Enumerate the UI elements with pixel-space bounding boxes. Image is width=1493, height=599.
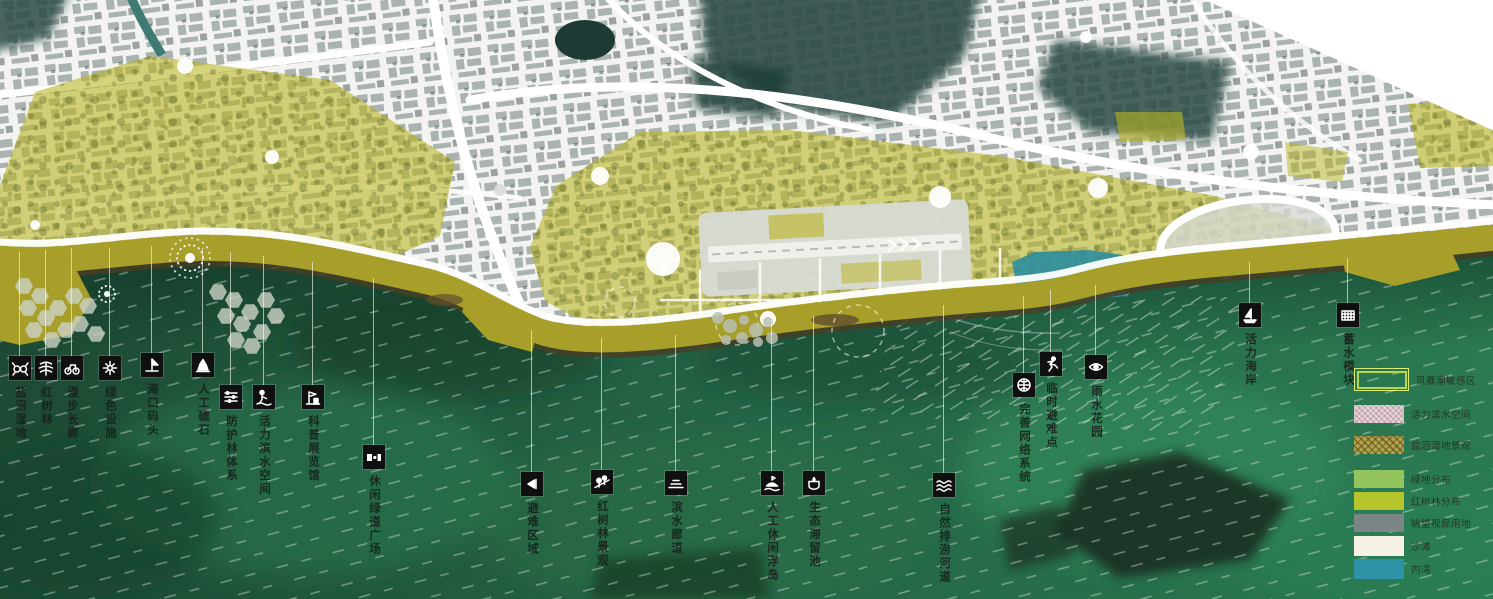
leader-line bbox=[45, 250, 46, 356]
legend-label: 风暴潮敏感区 bbox=[1416, 373, 1476, 387]
mangrove-view-icon bbox=[591, 470, 613, 494]
legend-label: 绿地分布 bbox=[1411, 472, 1451, 486]
legend-row: 绿地分布 bbox=[1354, 470, 1493, 488]
salt-marsh-icon bbox=[9, 356, 31, 380]
exhibition-hall-icon bbox=[302, 385, 324, 409]
callout-label: 人工礁石 bbox=[195, 383, 211, 437]
leader-line bbox=[1347, 258, 1348, 303]
leader-line bbox=[263, 256, 264, 385]
legend-row: 眺望视廊用地 bbox=[1354, 514, 1493, 532]
leader-line bbox=[813, 316, 814, 471]
callout-label: 海口码头 bbox=[144, 383, 160, 437]
refuge-area-icon bbox=[521, 472, 543, 496]
waterfront-space-icon bbox=[253, 385, 275, 409]
mangrove-tree-icon bbox=[35, 356, 57, 380]
active-coast-icon bbox=[1239, 303, 1261, 327]
callout-label: 滨水廊道 bbox=[668, 501, 684, 555]
leader-line bbox=[19, 252, 20, 356]
callout-label: 防护林体系 bbox=[223, 415, 239, 483]
leader-line bbox=[202, 248, 203, 353]
leader-line bbox=[943, 305, 944, 473]
callout-label: 绿色设施 bbox=[102, 386, 118, 440]
water-storage-icon bbox=[1337, 303, 1359, 327]
legend-swatch bbox=[1354, 368, 1409, 391]
leader-line bbox=[109, 248, 110, 356]
leader-line bbox=[771, 320, 772, 471]
retention-pond-icon bbox=[803, 471, 825, 495]
callout-label: 雨水花园 bbox=[1088, 385, 1104, 439]
masterplan-canvas: 盐沼湿地 红树林 漫步长廊 绿色设施 海口码头 人工礁石 bbox=[0, 0, 1493, 599]
drainage-channel-icon bbox=[933, 473, 955, 497]
leader-line bbox=[1023, 296, 1024, 373]
leader-line bbox=[675, 335, 676, 471]
legend-row: 活力滨水空间 bbox=[1354, 405, 1493, 423]
legend-swatch bbox=[1354, 536, 1404, 556]
wharf-sail-icon bbox=[141, 353, 163, 377]
legend-row: 沙滩 bbox=[1354, 536, 1493, 556]
bicycle-icon bbox=[61, 356, 83, 380]
callout-label: 漫步长廊 bbox=[64, 386, 80, 440]
callout-label: 活力海岸 bbox=[1242, 333, 1258, 387]
shelter-forest-icon bbox=[220, 385, 242, 409]
leader-line bbox=[71, 248, 72, 356]
map-legend: 风暴潮敏感区 活力滨水空间 盐沼湿地景观 绿地分布 红树林分布 眺望视廊用地 沙… bbox=[1354, 368, 1493, 579]
legend-swatch bbox=[1354, 559, 1404, 579]
leader-line bbox=[601, 338, 602, 470]
legend-swatch bbox=[1354, 470, 1404, 488]
callout-label: 红树林 bbox=[38, 386, 54, 427]
leader-line bbox=[230, 252, 231, 385]
legend-row: 内湾 bbox=[1354, 559, 1493, 579]
leader-line bbox=[1050, 290, 1051, 352]
legend-label: 红树林分布 bbox=[1411, 494, 1461, 508]
legend-row: 风暴潮敏感区 bbox=[1354, 368, 1493, 391]
evacuation-point-icon bbox=[1040, 352, 1062, 376]
legend-label: 内湾 bbox=[1411, 562, 1431, 576]
leader-line bbox=[373, 278, 374, 445]
legend-row: 红树林分布 bbox=[1354, 492, 1493, 510]
legend-swatch bbox=[1354, 405, 1404, 423]
legend-label: 活力滨水空间 bbox=[1411, 407, 1471, 421]
callout-label: 盐沼湿地 bbox=[12, 386, 28, 440]
callout-label: 自然排涝河道 bbox=[936, 503, 952, 584]
legend-label: 盐沼湿地景观 bbox=[1411, 438, 1471, 452]
callout-label: 生态滞留池 bbox=[806, 501, 822, 569]
legend-swatch bbox=[1354, 492, 1404, 510]
masterplan-map bbox=[0, 0, 1493, 599]
waterfront-corridor-icon bbox=[665, 471, 687, 495]
green-facility-icon bbox=[99, 356, 121, 380]
floating-island-icon bbox=[761, 471, 783, 495]
callout-label: 红树林景观 bbox=[594, 500, 610, 568]
leader-line bbox=[531, 330, 532, 472]
legend-row: 盐沼湿地景观 bbox=[1354, 436, 1493, 454]
rain-garden-icon bbox=[1085, 355, 1107, 379]
callout-label: 临时避难点 bbox=[1043, 382, 1059, 450]
greenway-plaza-icon bbox=[363, 445, 385, 469]
callout-label: 人工休闲浮岛 bbox=[764, 501, 780, 582]
legend-label: 眺望视廊用地 bbox=[1411, 516, 1471, 530]
callout-label: 避难区域 bbox=[524, 502, 540, 556]
network-system-icon bbox=[1013, 373, 1035, 397]
callout-label: 休闲绿道广场 bbox=[366, 475, 382, 556]
leader-line bbox=[151, 246, 152, 353]
leader-line bbox=[1249, 262, 1250, 303]
reef-rock-icon bbox=[192, 353, 214, 377]
callout-label: 科普展览馆 bbox=[305, 415, 321, 483]
legend-label: 沙滩 bbox=[1411, 539, 1431, 553]
leader-line bbox=[312, 262, 313, 385]
callout-label: 活力滨水空间 bbox=[256, 415, 272, 496]
callout-label: 完善网络系统 bbox=[1016, 403, 1032, 484]
leader-line bbox=[1095, 285, 1096, 355]
legend-swatch bbox=[1354, 514, 1404, 532]
legend-swatch bbox=[1354, 436, 1404, 454]
